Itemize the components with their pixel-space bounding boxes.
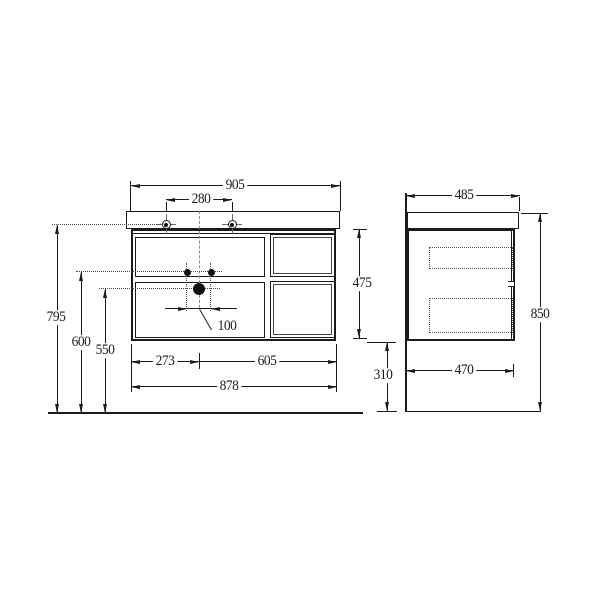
arrow-right-icon — [511, 194, 520, 198]
arrow-right-icon — [328, 360, 337, 364]
extension-line — [166, 202, 167, 212]
arrow-down-icon — [357, 329, 361, 338]
right-panel-lower-inner — [273, 284, 332, 335]
arrow-up-icon — [103, 289, 107, 298]
countertop-side — [407, 212, 520, 229]
dim-tap-hole-spacing: 280 — [189, 192, 213, 207]
dim-overall-width: 905 — [223, 178, 247, 193]
arrow-up-icon — [357, 229, 361, 238]
hidden-drawer-2 — [429, 298, 513, 334]
dimension-line-100 — [165, 308, 237, 309]
fixing-hole-left — [184, 269, 191, 276]
arrow-up-icon — [385, 342, 389, 351]
arrow-left-icon — [406, 369, 415, 373]
arrow-left-icon — [131, 184, 140, 188]
arrow-right-icon — [328, 385, 337, 389]
arrow-right-icon — [178, 307, 187, 311]
front-joint-line — [508, 286, 515, 287]
arrow-up-icon — [55, 225, 59, 234]
tap-hole-right-center — [230, 223, 234, 227]
arrow-left-icon — [131, 385, 140, 389]
dim-overall-depth: 485 — [452, 188, 476, 203]
arrow-left-icon — [166, 198, 175, 202]
dim-floor-to-drain: 550 — [93, 343, 117, 358]
dim-floor-to-tap-holes: 795 — [44, 310, 68, 325]
arrow-right-icon — [505, 369, 514, 373]
dim-right-section-width: 605 — [255, 354, 279, 369]
right-panel-upper — [270, 234, 335, 278]
hidden-drawer-1 — [429, 247, 513, 269]
arrow-left-icon — [131, 360, 140, 364]
dim-floor-to-fixing-holes: 600 — [69, 335, 93, 350]
floor-line — [48, 412, 363, 414]
ref-line-600 — [76, 271, 222, 272]
dim-cabinet-width: 878 — [217, 379, 241, 394]
extension-line — [232, 202, 233, 212]
tap-hole-left-center — [164, 223, 168, 227]
dim-cabinet-height: 475 — [350, 276, 374, 291]
arrow-down-icon — [538, 402, 542, 411]
arrow-left-icon — [406, 194, 415, 198]
extension-line — [519, 197, 520, 211]
arrow-right-icon — [190, 360, 199, 364]
arrow-up-icon — [79, 272, 83, 281]
dim-underside-clearance: 310 — [371, 368, 395, 383]
extension-line — [521, 213, 548, 214]
extension-line — [367, 342, 396, 343]
right-panel-lower — [270, 281, 335, 338]
ref-line-795 — [52, 224, 163, 225]
dim-left-section-width: 273 — [153, 354, 177, 369]
dim-fixing-hole-spacing: 100 — [215, 319, 239, 334]
floor-line — [405, 411, 541, 413]
arrow-right-icon — [223, 198, 232, 202]
arrow-up-icon — [538, 213, 542, 222]
drain-hole — [193, 283, 205, 295]
fixing-hole-right — [208, 269, 215, 276]
dim-overall-height: 850 — [528, 307, 552, 322]
arrow-left-icon — [211, 307, 220, 311]
arrow-down-icon — [385, 402, 389, 411]
right-panel-upper-inner — [273, 237, 332, 275]
technical-drawing: 905 280 795 600 550 100 — [0, 0, 600, 600]
front-joint-line — [508, 281, 515, 282]
dim-cabinet-depth: 470 — [452, 363, 476, 378]
arrow-right-icon — [331, 184, 340, 188]
